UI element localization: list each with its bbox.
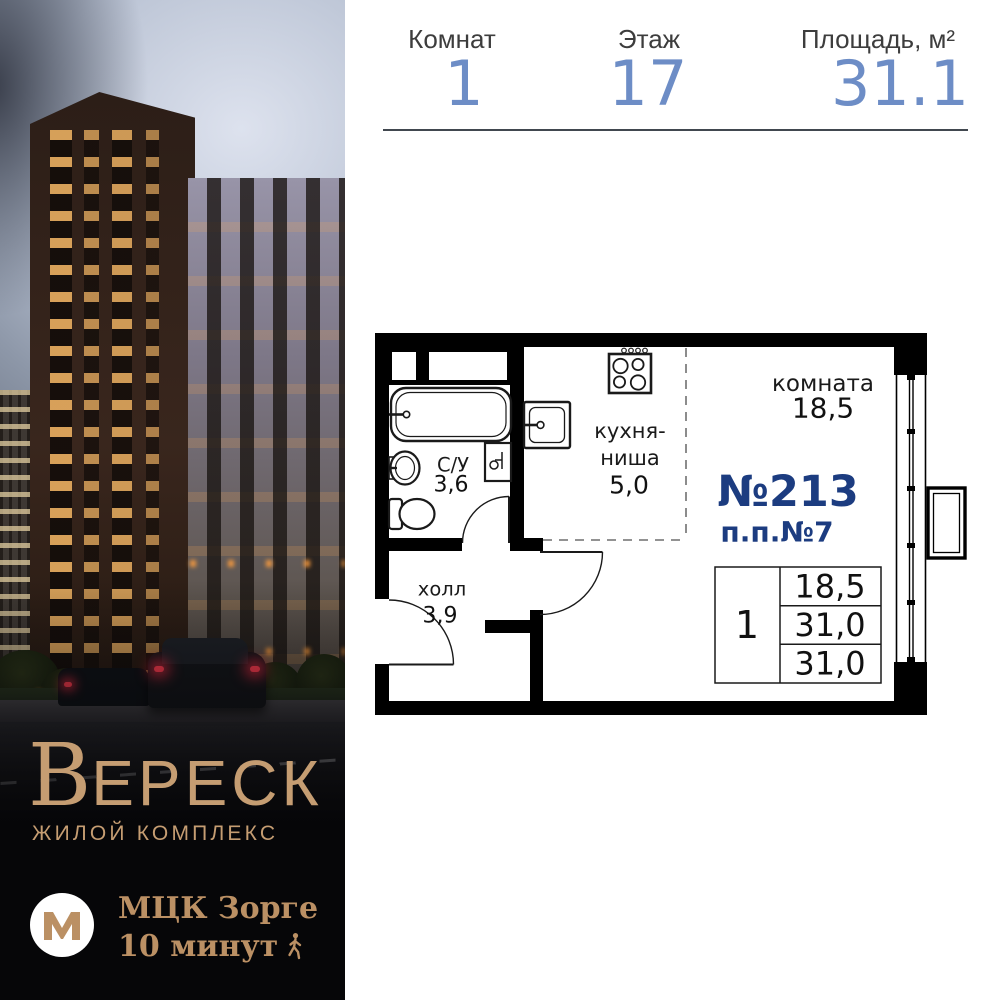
stat-value-rooms: 1 — [444, 54, 483, 114]
room-door — [540, 552, 603, 615]
plan-position-number: п.п.№7 — [720, 516, 833, 549]
walking-person-icon — [286, 932, 304, 960]
metro-station: МЦК Зорге — [118, 890, 318, 928]
ventilation-shafts — [392, 352, 507, 380]
complex-logo: ВЕРЕСК — [28, 740, 323, 819]
building-photo: ВЕРЕСК ЖИЛОЙ КОМПЛЕКС МЦК Зорге 10 минут — [0, 0, 345, 1000]
complex-subtitle: ЖИЛОЙ КОМПЛЕКС — [32, 822, 278, 846]
apartment-listing-card: ВЕРЕСК ЖИЛОЙ КОМПЛЕКС МЦК Зорге 10 минут — [0, 0, 1000, 1000]
stat-value-area: 31.1 — [831, 54, 969, 114]
kitchen-sink-icon — [524, 402, 570, 448]
ac-basket — [928, 488, 965, 558]
table-row1: 18,5 — [794, 568, 865, 606]
table-row2: 31,0 — [794, 606, 865, 644]
washing-machine-icon — [485, 443, 511, 481]
stat-value-floor: 17 — [609, 54, 688, 114]
facade-lights — [190, 560, 345, 567]
room-label-kitchen-2: ниша — [600, 446, 659, 470]
logo-initial: В — [28, 726, 91, 826]
table-row3: 31,0 — [794, 645, 865, 683]
room-area-bathroom: 3,6 — [434, 473, 469, 498]
room-area-hall: 3,9 — [423, 604, 458, 629]
room-area-kitchen: 5,0 — [609, 471, 649, 500]
metro-m-icon — [42, 910, 82, 942]
stove-icon — [609, 348, 651, 393]
logo-rest: ЕРЕСК — [91, 747, 323, 819]
bathroom-door — [463, 497, 510, 544]
window-mullions — [907, 375, 915, 662]
metro-text: МЦК Зорге 10 минут — [118, 890, 318, 966]
metro-m-logo — [30, 893, 94, 957]
room-label-kitchen-1: кухня- — [594, 419, 665, 443]
bathtub-icon — [389, 388, 511, 441]
room-area-living: 18,5 — [792, 392, 854, 425]
room-label-hall: холл — [418, 578, 466, 601]
floor-plan: комната 18,5 кухня- ниша 5,0 С/У 3,6 хол… — [372, 328, 972, 728]
toilet-icon — [389, 499, 435, 529]
table-rooms-count: 1 — [735, 603, 759, 647]
header-divider — [383, 129, 968, 131]
washbasin-icon — [389, 452, 420, 485]
metro-walk-time: 10 минут — [118, 928, 318, 966]
window-wall — [897, 375, 926, 662]
apartment-number: №213 — [717, 467, 859, 517]
